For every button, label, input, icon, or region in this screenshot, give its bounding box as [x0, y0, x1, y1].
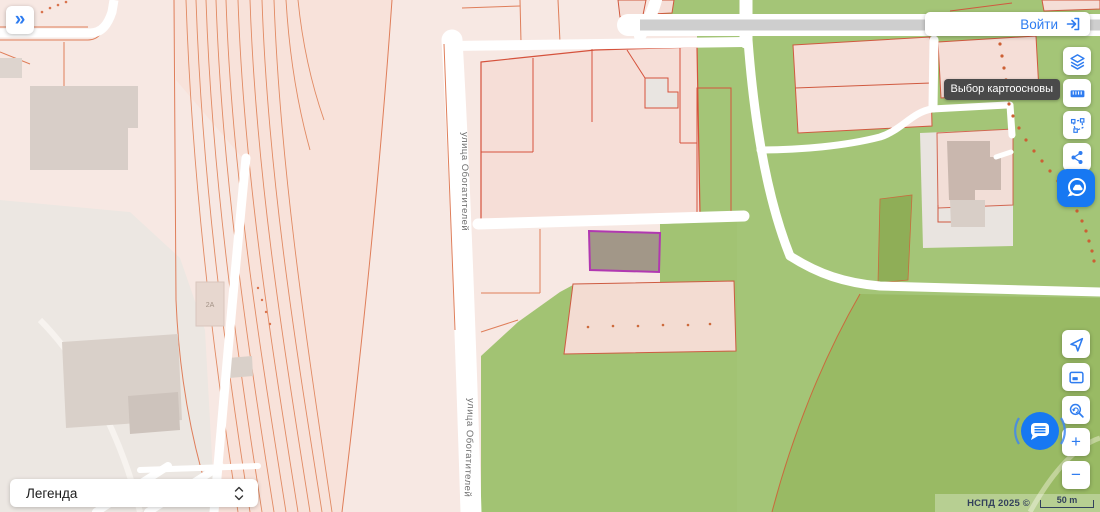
building-label: 2А — [206, 302, 215, 309]
share-button[interactable] — [1063, 143, 1091, 171]
map-app: 2А — [0, 0, 1100, 512]
basemap-tooltip: Выбор картоосновы — [944, 79, 1060, 100]
selected-parcel[interactable] — [589, 231, 660, 272]
layers-icon — [1069, 53, 1086, 70]
plus-icon: + — [1071, 432, 1081, 452]
zoom-out-button[interactable]: − — [1062, 461, 1090, 489]
map-canvas[interactable]: 2А — [0, 0, 1100, 512]
scale-bar: 50 m — [1040, 496, 1094, 508]
polygon-select-icon — [1069, 117, 1086, 134]
overview-map-icon — [1068, 369, 1085, 386]
legend-label: Легенда — [26, 486, 77, 501]
parcel[interactable] — [564, 281, 736, 354]
login-label: Войти — [1020, 17, 1058, 32]
minus-icon: − — [1071, 465, 1081, 485]
share-icon — [1069, 149, 1085, 165]
locate-button[interactable] — [1062, 330, 1090, 358]
chat-button[interactable] — [1010, 401, 1070, 461]
street-label: улица Обогатителей — [459, 132, 470, 231]
expand-panel-button[interactable]: » — [6, 6, 34, 34]
building — [128, 392, 180, 434]
building — [30, 86, 138, 170]
overview-map-button[interactable] — [1062, 363, 1090, 391]
chat-ripple-right — [1061, 418, 1065, 444]
ruler-icon — [1069, 85, 1086, 102]
legend-select[interactable]: Легенда — [10, 479, 258, 507]
ruler-button[interactable] — [1063, 79, 1091, 107]
layers-button[interactable] — [1063, 47, 1091, 75]
zoom-extent-icon — [1068, 402, 1085, 419]
green-patch — [878, 195, 912, 283]
login-button[interactable]: Войти — [925, 12, 1090, 36]
up-down-chevron-icon — [234, 486, 244, 501]
polygon-select-button[interactable] — [1063, 111, 1091, 139]
scale-label: 50 m — [1040, 495, 1094, 505]
locate-arrow-icon — [1068, 336, 1085, 353]
login-icon — [1065, 16, 1081, 32]
parcel[interactable] — [481, 47, 700, 225]
panorama-button[interactable] — [1057, 169, 1095, 207]
chat-ripple-left — [1015, 418, 1019, 444]
double-chevron-right-icon: » — [15, 7, 26, 33]
attribution: НСПД 2025 © — [967, 498, 1030, 509]
panorama-pin-icon — [1063, 175, 1089, 201]
